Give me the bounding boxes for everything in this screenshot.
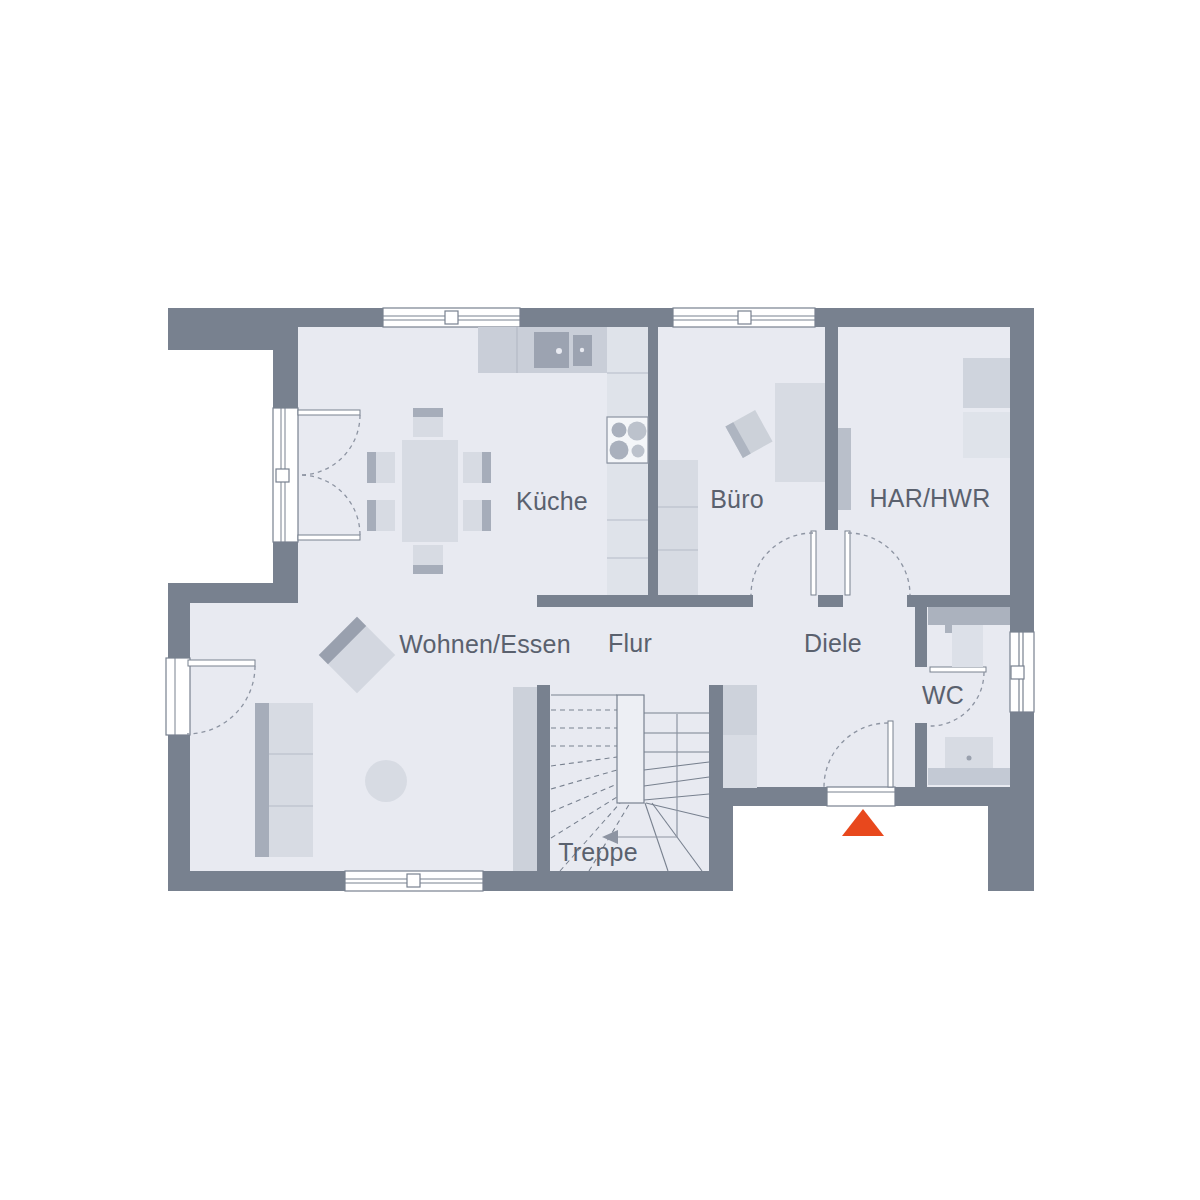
room-label-har-hwr: HAR/HWR [870, 486, 991, 511]
room-label-buero: Büro [710, 487, 764, 512]
room-label-wc: WC [922, 683, 964, 708]
kitchen-hob [607, 417, 648, 463]
floorplan-canvas: Wohnen/Essen Küche Büro HAR/HWR Flur Die… [0, 0, 1200, 1200]
sideboard [513, 687, 537, 871]
window-north-living [383, 308, 520, 327]
wc-basin [952, 625, 983, 667]
entrance-marker-icon [842, 809, 884, 836]
window-north-office [673, 308, 815, 327]
room-label-flur: Flur [608, 631, 652, 656]
stair-spine [617, 695, 644, 803]
hall-wardrobe [723, 685, 757, 788]
room-label-wohnen-essen: Wohnen/Essen [399, 632, 571, 657]
dining-table [402, 440, 458, 542]
wc-toilet [945, 737, 993, 768]
wc-vanity [928, 607, 1010, 625]
kitchen-sink [534, 332, 569, 368]
room-label-diele: Diele [804, 631, 862, 656]
room-label-treppe: Treppe [558, 840, 637, 865]
sofa [255, 703, 313, 857]
floorplan-drawing [0, 0, 1200, 1200]
dryer [963, 412, 1010, 458]
washer [963, 358, 1010, 408]
desk [775, 383, 825, 482]
window-south-living [345, 871, 483, 891]
pouf [365, 760, 407, 802]
office-shelf [658, 460, 698, 595]
utility-cabinet [838, 428, 851, 510]
window-east-wc [1010, 632, 1034, 712]
room-label-kueche: Küche [516, 489, 588, 514]
